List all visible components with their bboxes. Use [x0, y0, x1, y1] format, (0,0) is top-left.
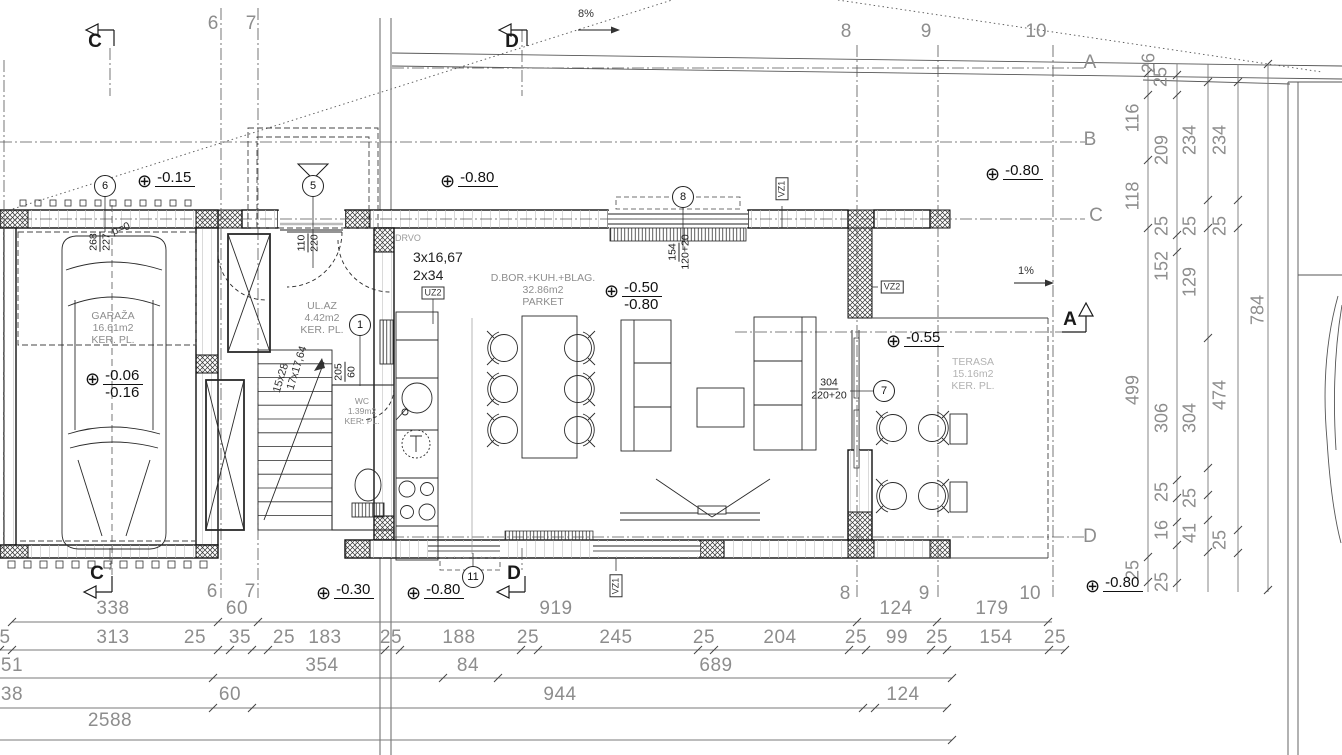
dimension-value: 25 [1210, 530, 1231, 550]
elevation-target-icon [85, 370, 100, 388]
dimension-value: 25 [1180, 216, 1201, 236]
terrace-outline [872, 318, 1048, 558]
elevation-marker: -0.15 [137, 170, 195, 190]
dimension-value: 60 [219, 684, 241, 706]
dimension-value: 25 [1044, 627, 1066, 649]
elevation-marker: -0.06-0.16 [85, 368, 143, 401]
room-label-living: D.BOR.+KUH.+BLAG. 32.86m2 PARKET [491, 272, 595, 308]
dimension-value: 25 [845, 627, 867, 649]
position-number-marker: 5 [302, 175, 324, 197]
size-width: 205 [333, 362, 346, 382]
section-marker-label: C [88, 31, 102, 53]
elevation-target-icon [985, 165, 1000, 183]
dimension-value: 84 [457, 655, 479, 677]
dimension-value: 306 [1152, 403, 1173, 433]
dimension-value: 25 [1152, 572, 1173, 592]
dimension-value: 129 [1180, 267, 1201, 297]
opening-size-label: 20560 [333, 362, 358, 382]
annotation-text: 3x16,67 [413, 249, 463, 265]
dimension-value: 51 [1, 655, 23, 677]
grid-row-label: A [1084, 52, 1097, 74]
dimension-value: 204 [763, 627, 796, 649]
dimension-value: 25 [693, 627, 715, 649]
dimension-value: 183 [308, 627, 341, 649]
dimension-value: 124 [886, 684, 919, 706]
dimension-value: 35 [229, 627, 251, 649]
room-label-wc: WC 1.39m2 KER. PL. [345, 396, 380, 426]
dimension-value: 354 [305, 655, 338, 677]
dimension-value: 25 [1180, 488, 1201, 508]
section-and-slope-symbols [84, 24, 1093, 598]
dimension-value: 152 [1152, 251, 1173, 281]
room-floor: KER. PL. [91, 334, 134, 346]
elevation-marker: -0.80 [440, 170, 498, 190]
grid-column-label: 10 [1019, 583, 1040, 605]
dimension-value: 499 [1123, 375, 1144, 405]
section-marker-label: D [507, 563, 521, 585]
grid-column-label: 6 [207, 581, 218, 603]
dimension-value: 25 [1210, 216, 1231, 236]
dimension-value: 188 [442, 627, 475, 649]
dimension-value: 2588 [88, 710, 132, 732]
position-number-marker: 6 [94, 175, 116, 197]
elevation-value: -0.80 [424, 582, 464, 599]
room-label-entry: UL.AZ 4.42m2 KER. PL. [300, 300, 343, 336]
elevation-marker: -0.55 [886, 330, 944, 350]
annotation-text: 1% [1018, 265, 1034, 277]
opening-size-label: 154120+20 [667, 234, 692, 269]
dimension-value: 118 [1123, 182, 1144, 211]
size-width: 304 [819, 377, 839, 390]
dimension-value: 234 [1210, 125, 1231, 155]
dimension-value: 245 [599, 627, 632, 649]
dimension-value: 25 [380, 627, 402, 649]
size-width: 110 [296, 234, 309, 253]
grid-row-label: B [1084, 129, 1097, 151]
elevation-marker: -0.50-0.80 [604, 280, 662, 313]
room-name: D.BOR.+KUH.+BLAG. [491, 272, 595, 284]
room-area: 16.61m2 [91, 322, 134, 334]
elevation-marker: -0.80 [985, 163, 1043, 183]
dimension-value: 338 [96, 598, 129, 620]
elevation-marker: -0.80 [1085, 575, 1143, 595]
dimension-value: 689 [699, 655, 732, 677]
size-height: 60 [346, 366, 358, 378]
elevation-value: -0.30 [334, 582, 374, 599]
dimension-value: 313 [96, 627, 129, 649]
room-name: WC [345, 396, 380, 406]
dimension-value: 124 [879, 598, 912, 620]
room-label-terrace: TERASA 15.16m2 KER. PL. [951, 356, 994, 392]
opening-size-label: 268227 [88, 232, 113, 252]
room-name: UL.AZ [300, 300, 343, 312]
elevation-value: -0.16 [103, 385, 143, 401]
room-floor: KER. PL. [300, 324, 343, 336]
dimension-value: 60 [226, 598, 248, 620]
elevation-marker: -0.30 [316, 582, 374, 602]
room-area: 32.86m2 [491, 284, 595, 296]
dimension-value: 5 [0, 627, 11, 649]
annotation-text: DRVO [395, 233, 421, 243]
dimension-value: 25 [273, 627, 295, 649]
position-number-marker: 8 [672, 186, 694, 208]
elevation-target-icon [316, 584, 331, 602]
dimension-value: 25 [1151, 67, 1172, 87]
elevation-value: -0.50 [622, 280, 662, 297]
dimension-value: 234 [1180, 125, 1201, 155]
ventilation-shaft-label: UZ2 [421, 287, 444, 300]
room-name: TERASA [951, 356, 994, 368]
room-floor: PARKET [491, 296, 595, 308]
dimension-value: 38 [1, 684, 23, 706]
position-number-marker: 1 [349, 314, 371, 336]
dimension-value: 25 [517, 627, 539, 649]
grid-column-label: 7 [246, 13, 257, 35]
elevation-value: -0.80 [458, 170, 498, 187]
annotation-text: 8% [578, 8, 594, 20]
grid-row-label: C [1089, 205, 1103, 227]
room-label-garage: GARAŽA 16.61m2 KER. PL. [91, 310, 134, 346]
size-height: 227 [101, 233, 113, 251]
dimension-value: 16 [1152, 520, 1173, 540]
room-area: 1.39m2 [345, 406, 380, 416]
elevation-target-icon [886, 332, 901, 350]
size-width: 268 [88, 232, 101, 252]
dimension-value: 41 [1180, 523, 1201, 543]
position-number-marker: 11 [462, 566, 484, 588]
elevation-target-icon [406, 584, 421, 602]
dimension-value: 116 [1123, 104, 1144, 133]
size-height: 220+20 [811, 390, 846, 402]
dimension-value: 919 [539, 598, 572, 620]
grid-column-label: 9 [921, 21, 932, 43]
elevation-value: -0.80 [1103, 575, 1143, 592]
size-height: 120+20 [680, 234, 692, 269]
elevation-value: -0.55 [904, 330, 944, 347]
ventilation-shaft-label: VZ2 [881, 281, 904, 294]
annotation-text: 2x34 [413, 267, 443, 283]
elevation-value: -0.06 [103, 368, 143, 385]
dimension-value: 154 [979, 627, 1012, 649]
dimension-value: 25 [926, 627, 948, 649]
floor-plan-sheet: 678910 678910 ABCD CDCDA 8%1%DRVO3x16,67… [0, 0, 1342, 755]
elevation-value: -0.80 [1003, 163, 1043, 180]
elevation-marker: -0.80 [406, 582, 464, 602]
grid-column-label: 10 [1025, 21, 1046, 43]
elevation-target-icon [1085, 577, 1100, 595]
opening-size-label: 110220 [296, 234, 321, 253]
dimension-value: 25 [1152, 216, 1173, 236]
ventilation-shaft-label: VZ1 [610, 575, 623, 598]
grid-column-label: 9 [919, 583, 930, 605]
elevation-value: -0.80 [622, 297, 662, 313]
elevation-value: -0.15 [155, 170, 195, 187]
dimension-value: 784 [1248, 295, 1269, 325]
dimension-value: 25 [184, 627, 206, 649]
room-floor: KER. PL. [951, 380, 994, 392]
grid-column-label: 8 [841, 21, 852, 43]
dimension-value: 944 [543, 684, 576, 706]
room-name: GARAŽA [91, 310, 134, 322]
section-marker-label: A [1063, 309, 1077, 331]
elevation-target-icon [604, 282, 619, 300]
grid-column-label: 8 [840, 583, 851, 605]
size-height: 220 [309, 234, 321, 252]
dimension-value: 474 [1210, 380, 1231, 410]
grid-column-label: 6 [208, 13, 219, 35]
opening-size-label: 304220+20 [811, 377, 846, 402]
elevation-target-icon [440, 172, 455, 190]
elevation-target-icon [137, 172, 152, 190]
grid-row-label: D [1083, 526, 1097, 548]
dimension-value: 179 [975, 598, 1008, 620]
ventilation-shaft-label: VZ1 [776, 178, 789, 201]
room-area: 15.16m2 [951, 368, 994, 380]
dimension-value: 25 [1152, 482, 1173, 502]
size-width: 154 [667, 242, 680, 262]
dimension-value: 99 [886, 627, 908, 649]
section-marker-label: C [90, 563, 104, 585]
room-area: 4.42m2 [300, 312, 343, 324]
room-floor: KER. PL. [345, 416, 380, 426]
dimension-value: 304 [1180, 403, 1201, 433]
dimension-value: 209 [1152, 135, 1173, 165]
position-number-marker: 7 [873, 380, 895, 402]
section-marker-label: D [505, 31, 519, 53]
